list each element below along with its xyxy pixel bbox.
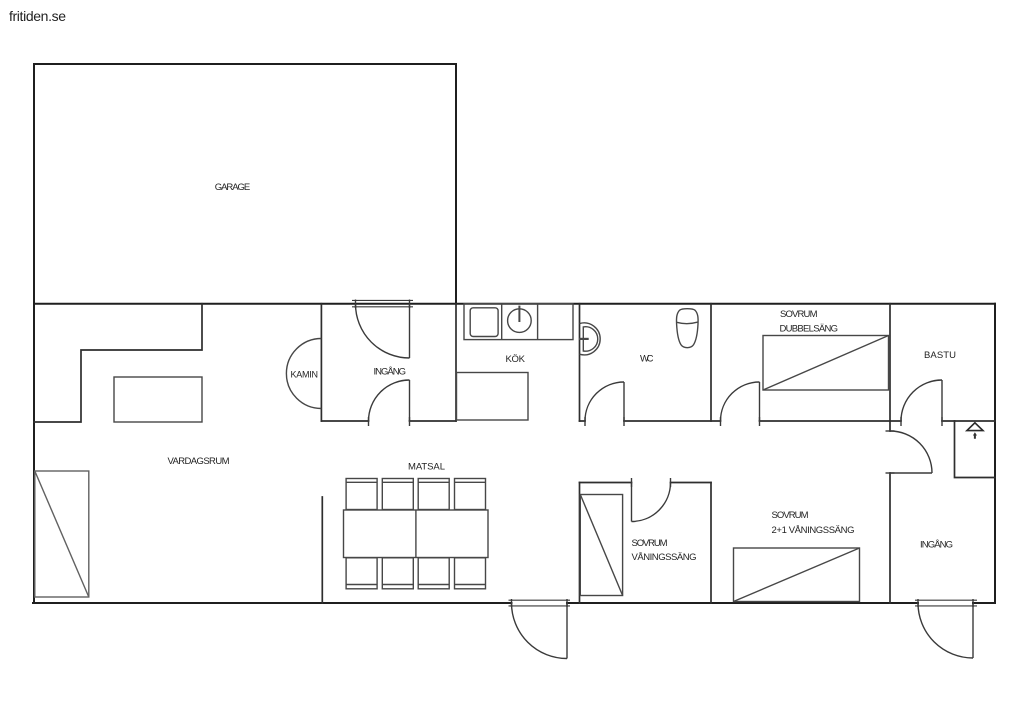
- svg-text:SOVRUM: SOVRUM: [632, 538, 668, 549]
- svg-text:VÅNINGSSÄNG: VÅNINGSSÄNG: [632, 552, 697, 563]
- svg-text:SOVRUM: SOVRUM: [772, 510, 809, 521]
- svg-text:fritiden.se: fritiden.se: [9, 8, 66, 24]
- svg-text:DUBBELSÄNG: DUBBELSÄNG: [780, 323, 839, 334]
- svg-text:INGÅNG: INGÅNG: [920, 540, 953, 551]
- svg-text:WC: WC: [640, 354, 654, 365]
- svg-text:KÖK: KÖK: [506, 354, 526, 365]
- svg-text:SOVRUM: SOVRUM: [780, 309, 818, 320]
- svg-text:INGÅNG: INGÅNG: [374, 367, 407, 378]
- svg-text:GARAGE: GARAGE: [215, 182, 251, 193]
- svg-text:VARDAGSRUM: VARDAGSRUM: [168, 456, 230, 467]
- svg-text:KAMIN: KAMIN: [291, 370, 319, 380]
- svg-text:2+1 VÅNINGSSÄNG: 2+1 VÅNINGSSÄNG: [772, 525, 855, 536]
- svg-text:BASTU: BASTU: [924, 350, 956, 361]
- svg-text:MATSAL: MATSAL: [408, 462, 445, 473]
